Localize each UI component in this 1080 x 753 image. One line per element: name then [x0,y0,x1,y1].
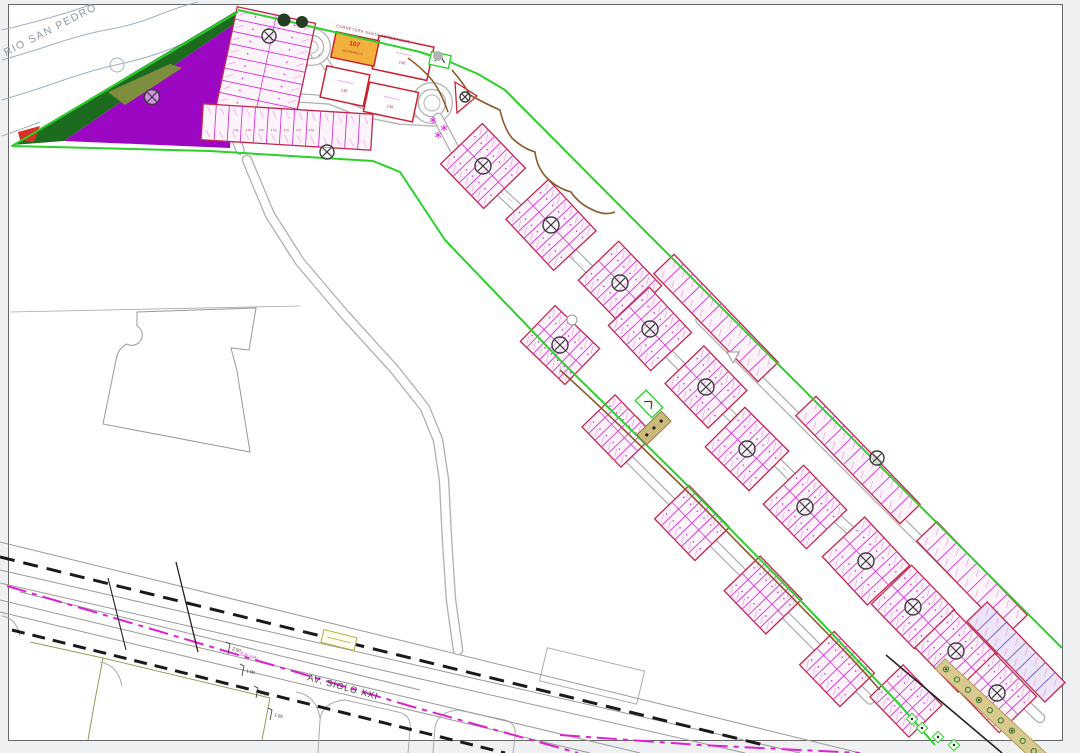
lot-row-number: 175 [246,128,252,132]
block-number-marker [858,553,874,569]
block-number-marker [612,275,628,291]
block-number-marker [797,499,813,515]
lot-row-number: 171 [296,128,302,132]
block-number-marker [543,217,559,233]
rock-symbol [433,51,443,61]
subdivision-plan-drawing: 1461481492.501.003.001.50176175174173172… [0,0,1080,753]
lot-row-number: 172 [283,128,289,132]
block-number-marker [739,441,755,457]
lot-row-number: 170 [309,128,315,132]
block-number-marker [552,337,568,353]
cul-de-sac-island [424,95,440,111]
block-number-marker [698,379,714,395]
block-number-marker [905,599,921,615]
block-number-marker [642,321,658,337]
block-number-marker [145,90,160,105]
block-number-marker [948,643,964,659]
utility-dot [911,718,913,720]
block-number-marker [870,451,884,465]
block-number-marker [460,92,470,102]
block-number-marker [989,685,1005,701]
tree-canopy-icon [278,14,291,27]
road-symbol-circle [567,315,577,325]
block-number-marker [475,158,491,174]
utility-dot [921,727,923,729]
tree-canopy-icon [296,16,308,28]
block-number-marker [320,145,334,159]
utility-dot [953,744,955,746]
block-number-marker [262,29,276,43]
utility-dot [937,736,939,738]
plan-page: 1461481492.501.003.001.50176175174173172… [0,0,1080,753]
lot-row-number: 174 [258,128,264,132]
lot-row-number: 176 [233,128,239,132]
lot-row-number: 173 [271,128,277,132]
